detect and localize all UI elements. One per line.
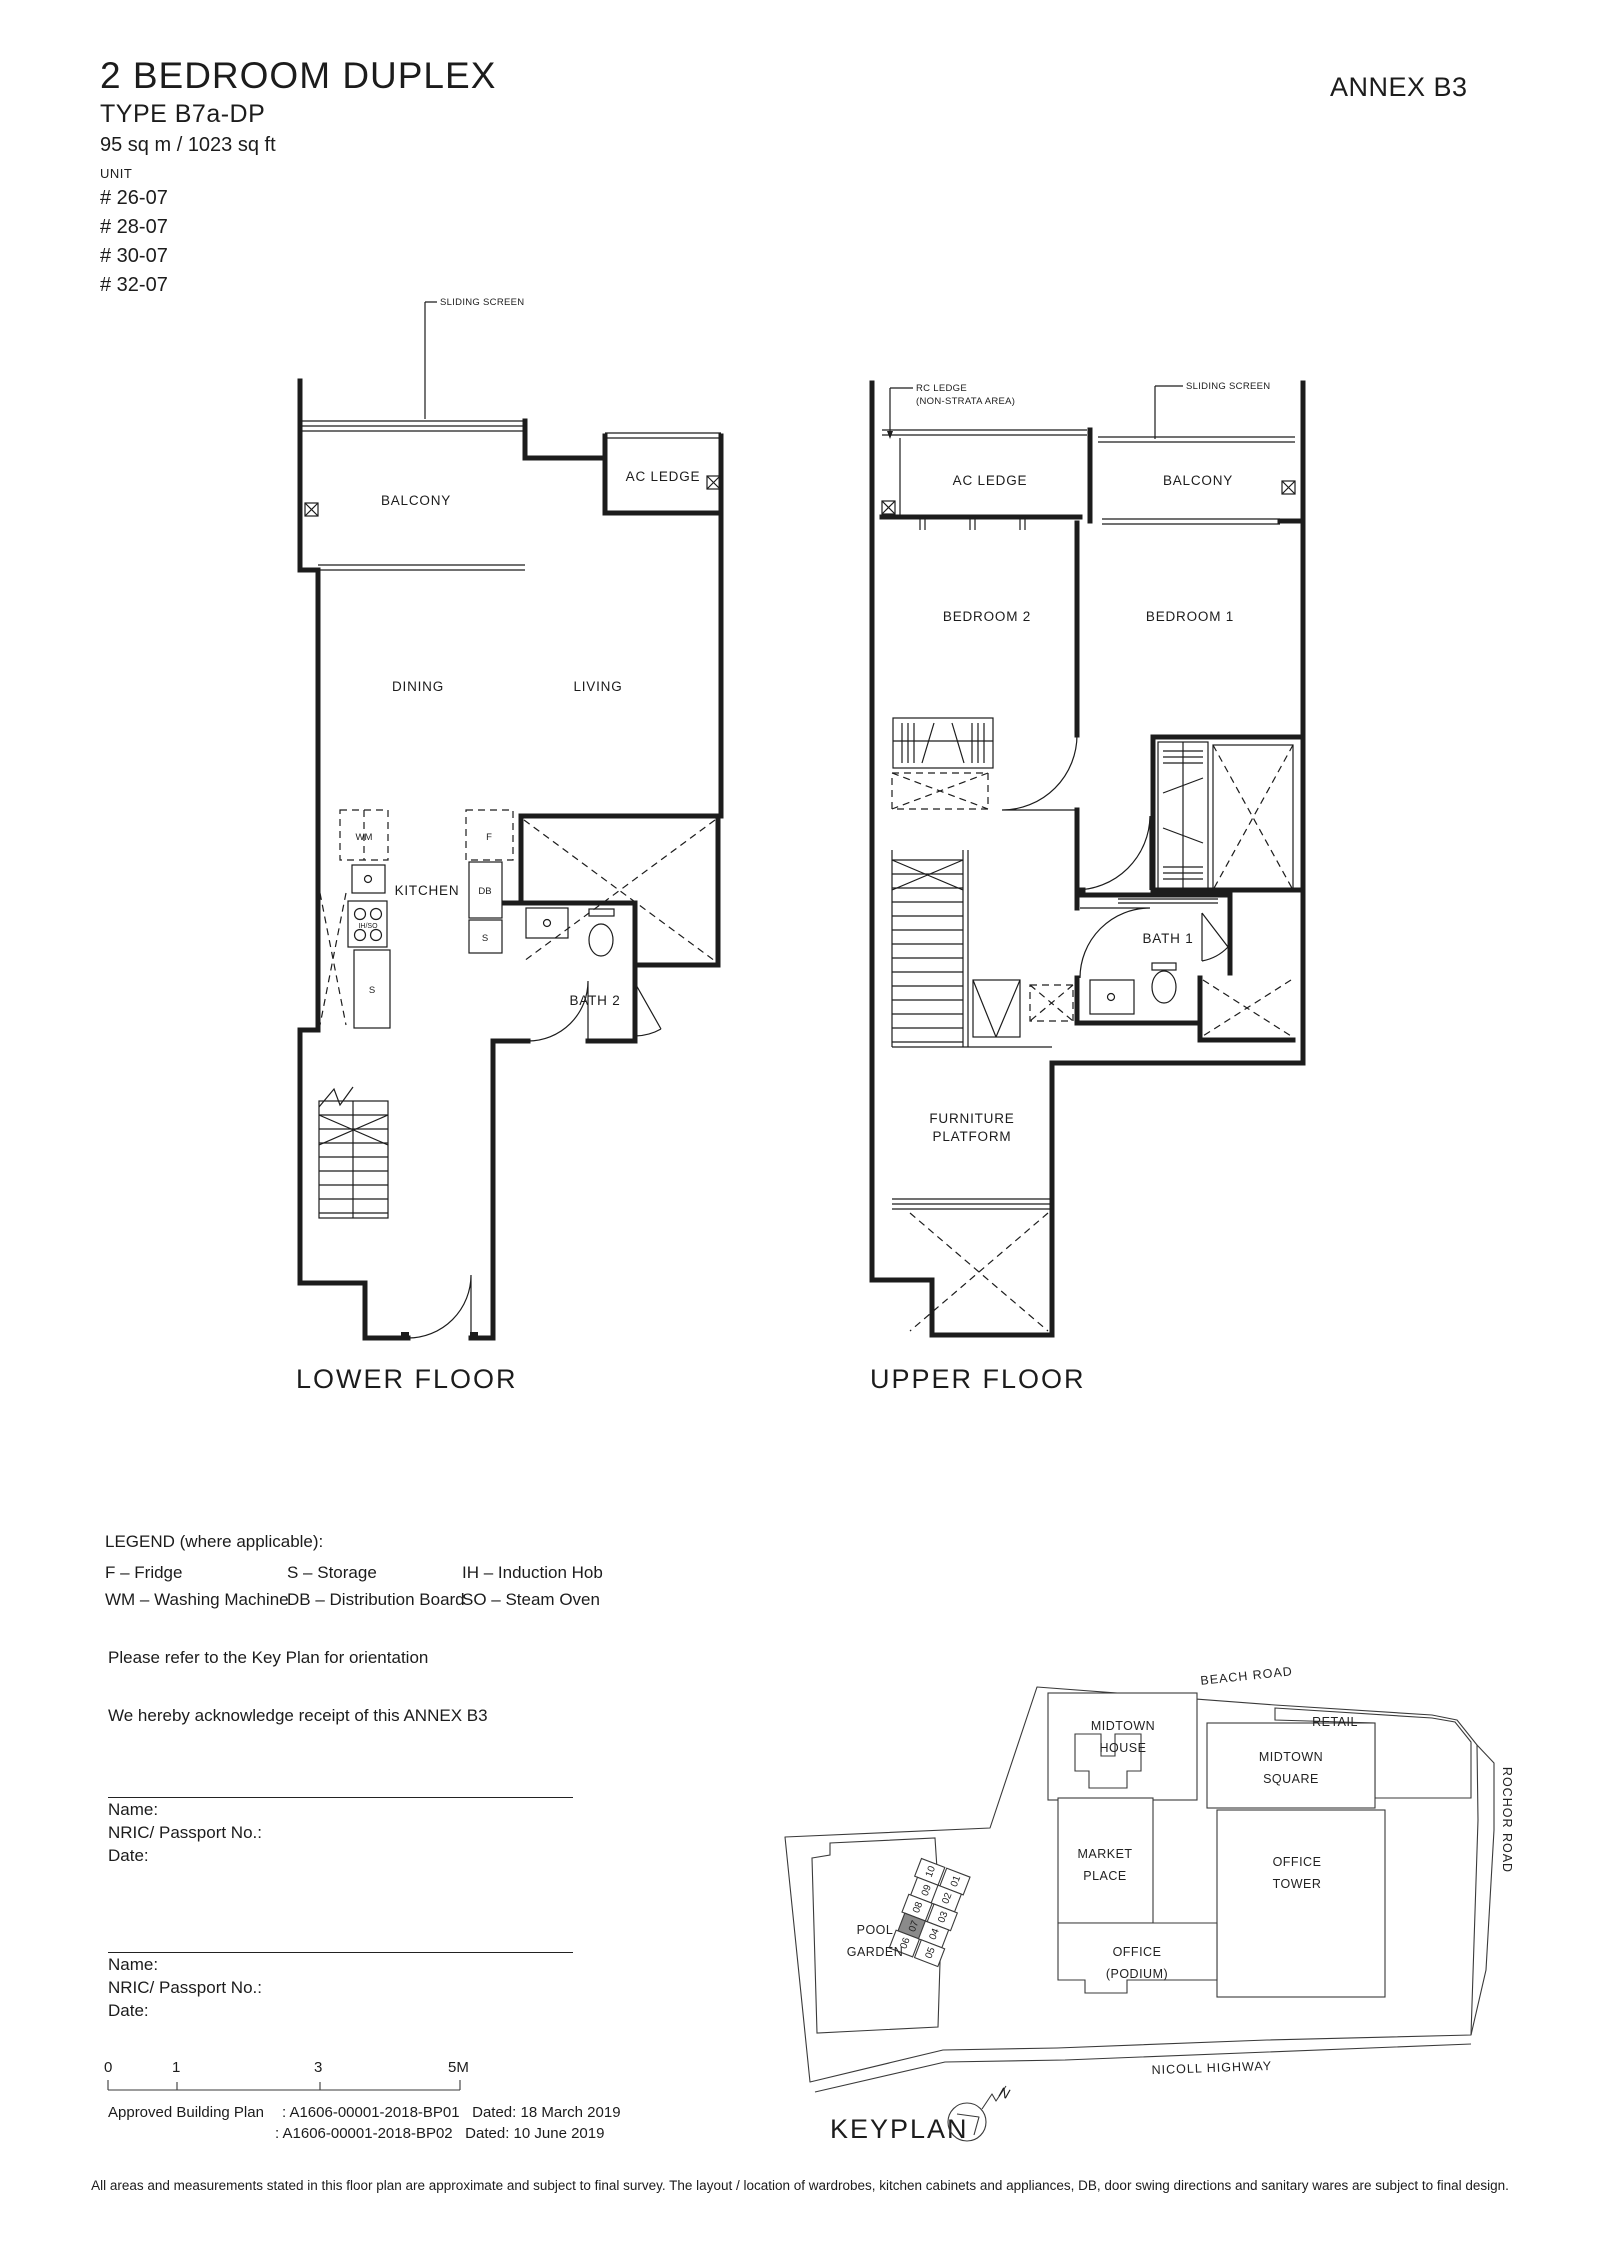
db-label: DB [478, 886, 491, 897]
furniture-platform-label2: PLATFORM [933, 1129, 1012, 1144]
wm-label: WM [356, 832, 373, 843]
bedroom1-wardrobe [1158, 742, 1208, 890]
date-field: Date: [108, 1844, 573, 1867]
furniture-platform-label1: FURNITURE [929, 1111, 1014, 1126]
name-field: Name: [108, 1953, 573, 1976]
lower-tracks [302, 421, 721, 570]
lower-stairs [319, 1087, 388, 1218]
bath2-label: BATH 2 [569, 993, 620, 1008]
lower-floor-plan: SLIDING SCREEN [288, 258, 738, 1418]
rochor-road-label: ROCHOR ROAD [1500, 1767, 1514, 1873]
upper-floor-title: UPPER FLOOR [870, 1364, 1086, 1394]
lower-dashed-voids [320, 820, 715, 1025]
signature-block-2: Name: NRIC/ Passport No.: Date: [108, 1952, 573, 2022]
market-place-label2: PLACE [1083, 1869, 1127, 1883]
scale-3: 3 [314, 2059, 322, 2076]
upper-rc-ledge-annotation: RC LEDGE (NON-STRATA AREA) [887, 383, 1015, 439]
scale-1: 1 [172, 2059, 180, 2076]
midtown-square-block [1207, 1723, 1375, 1808]
nric-field: NRIC/ Passport No.: [108, 1976, 573, 1999]
dining-label: DINING [392, 679, 444, 694]
floorplan-page: 2 BEDROOM DUPLEX TYPE B7a-DP 95 sq m / 1… [0, 0, 1600, 2264]
office-tower-label2: TOWER [1273, 1877, 1322, 1891]
rc-ledge-label: RC LEDGE [916, 383, 967, 394]
living-label: LIVING [573, 679, 622, 694]
bath1-label: BATH 1 [1142, 931, 1193, 946]
office-tower-label1: OFFICE [1273, 1855, 1322, 1869]
furniture-platform-zone [892, 1199, 1052, 1331]
bath1-fixtures [1030, 899, 1291, 1036]
lower-entry-door [401, 1275, 478, 1340]
midtown-house-label2: HOUSE [1100, 1741, 1147, 1755]
lower-floor-title: LOWER FLOOR [296, 1364, 518, 1394]
upper-walls [872, 383, 1303, 1335]
legend-wm: WM – Washing Machine [105, 1590, 289, 1610]
bedroom2-wardrobe [893, 718, 993, 768]
approval-block: Approved Building Plan : A1606-00001-201… [108, 2104, 621, 2142]
unit-label: UNIT [100, 166, 132, 181]
disclaimer-text: All areas and measurements stated in thi… [0, 2178, 1600, 2193]
north-label: N [997, 2084, 1012, 2103]
ihso-label: IH/SO [358, 923, 378, 930]
date-field: Date: [108, 1999, 573, 2022]
upper-doors [1002, 735, 1228, 978]
legend-so: SO – Steam Oven [462, 1590, 600, 1610]
bedroom2-void [892, 773, 988, 809]
bedroom1-closet [1213, 745, 1293, 890]
unit-number-4: # 32-07 [100, 271, 168, 300]
sliding-screen-label: SLIDING SCREEN [440, 297, 524, 308]
unit-number-1: # 26-07 [100, 184, 168, 213]
storage2-label: S [369, 985, 375, 996]
signature-block-1: Name: NRIC/ Passport No.: Date: [108, 1797, 573, 1867]
approval-no-1: : A1606-00001-2018-BP01 [282, 2104, 460, 2121]
lower-balcony-label: BALCONY [381, 493, 451, 508]
kitchen-label: KITCHEN [395, 883, 460, 898]
approval-no-2: : A1606-00001-2018-BP02 [275, 2125, 453, 2142]
lower-bath2-fixtures [526, 908, 661, 1041]
fridge-label: F [486, 832, 492, 843]
rc-ledge-label2: (NON-STRATA AREA) [916, 396, 1015, 407]
pool-garden-label1: POOL [857, 1923, 894, 1937]
upper-sliding-screen-annotation: SLIDING SCREEN [1155, 381, 1270, 439]
office-tower-block [1217, 1810, 1385, 1997]
lower-ac-ledge-label: AC LEDGE [626, 469, 701, 484]
retail-label: RETAIL [1312, 1715, 1358, 1729]
unit-number-2: # 28-07 [100, 213, 168, 242]
bedroom1-label: BEDROOM 1 [1146, 609, 1234, 624]
nric-field: NRIC/ Passport No.: [108, 1821, 573, 1844]
scale-bar: 0 1 3 5M [100, 2052, 480, 2102]
lower-sliding-screen-annotation: SLIDING SCREEN [425, 297, 524, 419]
approval-date-1: Dated: 18 March 2019 [472, 2104, 620, 2121]
scale-5m: 5M [448, 2059, 469, 2076]
storage1-label: S [482, 933, 488, 944]
page-title: 2 BEDROOM DUPLEX [100, 55, 496, 97]
midtown-square-label2: SQUARE [1263, 1772, 1319, 1786]
keyplan-map: 10 09 08 07 06 01 02 03 04 05 MIDTOWN HO… [755, 1630, 1545, 2170]
unit-area: 95 sq m / 1023 sq ft [100, 134, 276, 157]
legend-db: DB – Distribution Board [287, 1590, 465, 1610]
bedroom2-label: BEDROOM 2 [943, 609, 1031, 624]
legend-f: F – Fridge [105, 1563, 182, 1583]
office-podium-label1: OFFICE [1113, 1945, 1162, 1959]
office-podium-label2: (PODIUM) [1106, 1967, 1168, 1981]
upper-stairs [892, 850, 1052, 1047]
midtown-house-label1: MIDTOWN [1091, 1719, 1155, 1733]
upper-floor-plan: RC LEDGE (NON-STRATA AREA) SLIDING SCREE… [850, 258, 1340, 1418]
nicoll-highway-label: NICOLL HIGHWAY [1151, 2059, 1272, 2077]
legend-title: LEGEND (where applicable): [105, 1532, 323, 1552]
annex-label: ANNEX B3 [1330, 72, 1468, 103]
name-field: Name: [108, 1798, 573, 1821]
unit-type: TYPE B7a-DP [100, 100, 265, 129]
upper-balcony-label: BALCONY [1163, 473, 1233, 488]
pool-garden-label2: GARDEN [847, 1945, 903, 1959]
legend-ih: IH – Induction Hob [462, 1563, 603, 1583]
keyplan-note: Please refer to the Key Plan for orienta… [108, 1648, 428, 1668]
upper-ac-ledge-label: AC LEDGE [953, 473, 1028, 488]
approval-label: Approved Building Plan [108, 2104, 264, 2121]
beach-road-label: BEACH ROAD [1200, 1664, 1294, 1688]
acknowledgement-note: We hereby acknowledge receipt of this AN… [108, 1706, 488, 1726]
upper-sliding-screen-label: SLIDING SCREEN [1186, 381, 1270, 392]
legend-s: S – Storage [287, 1563, 377, 1583]
midtown-square-label1: MIDTOWN [1259, 1750, 1323, 1764]
market-place-label1: MARKET [1077, 1847, 1132, 1861]
scale-0: 0 [104, 2059, 112, 2076]
approval-date-2: Dated: 10 June 2019 [465, 2125, 604, 2142]
unit-number-3: # 30-07 [100, 242, 168, 271]
